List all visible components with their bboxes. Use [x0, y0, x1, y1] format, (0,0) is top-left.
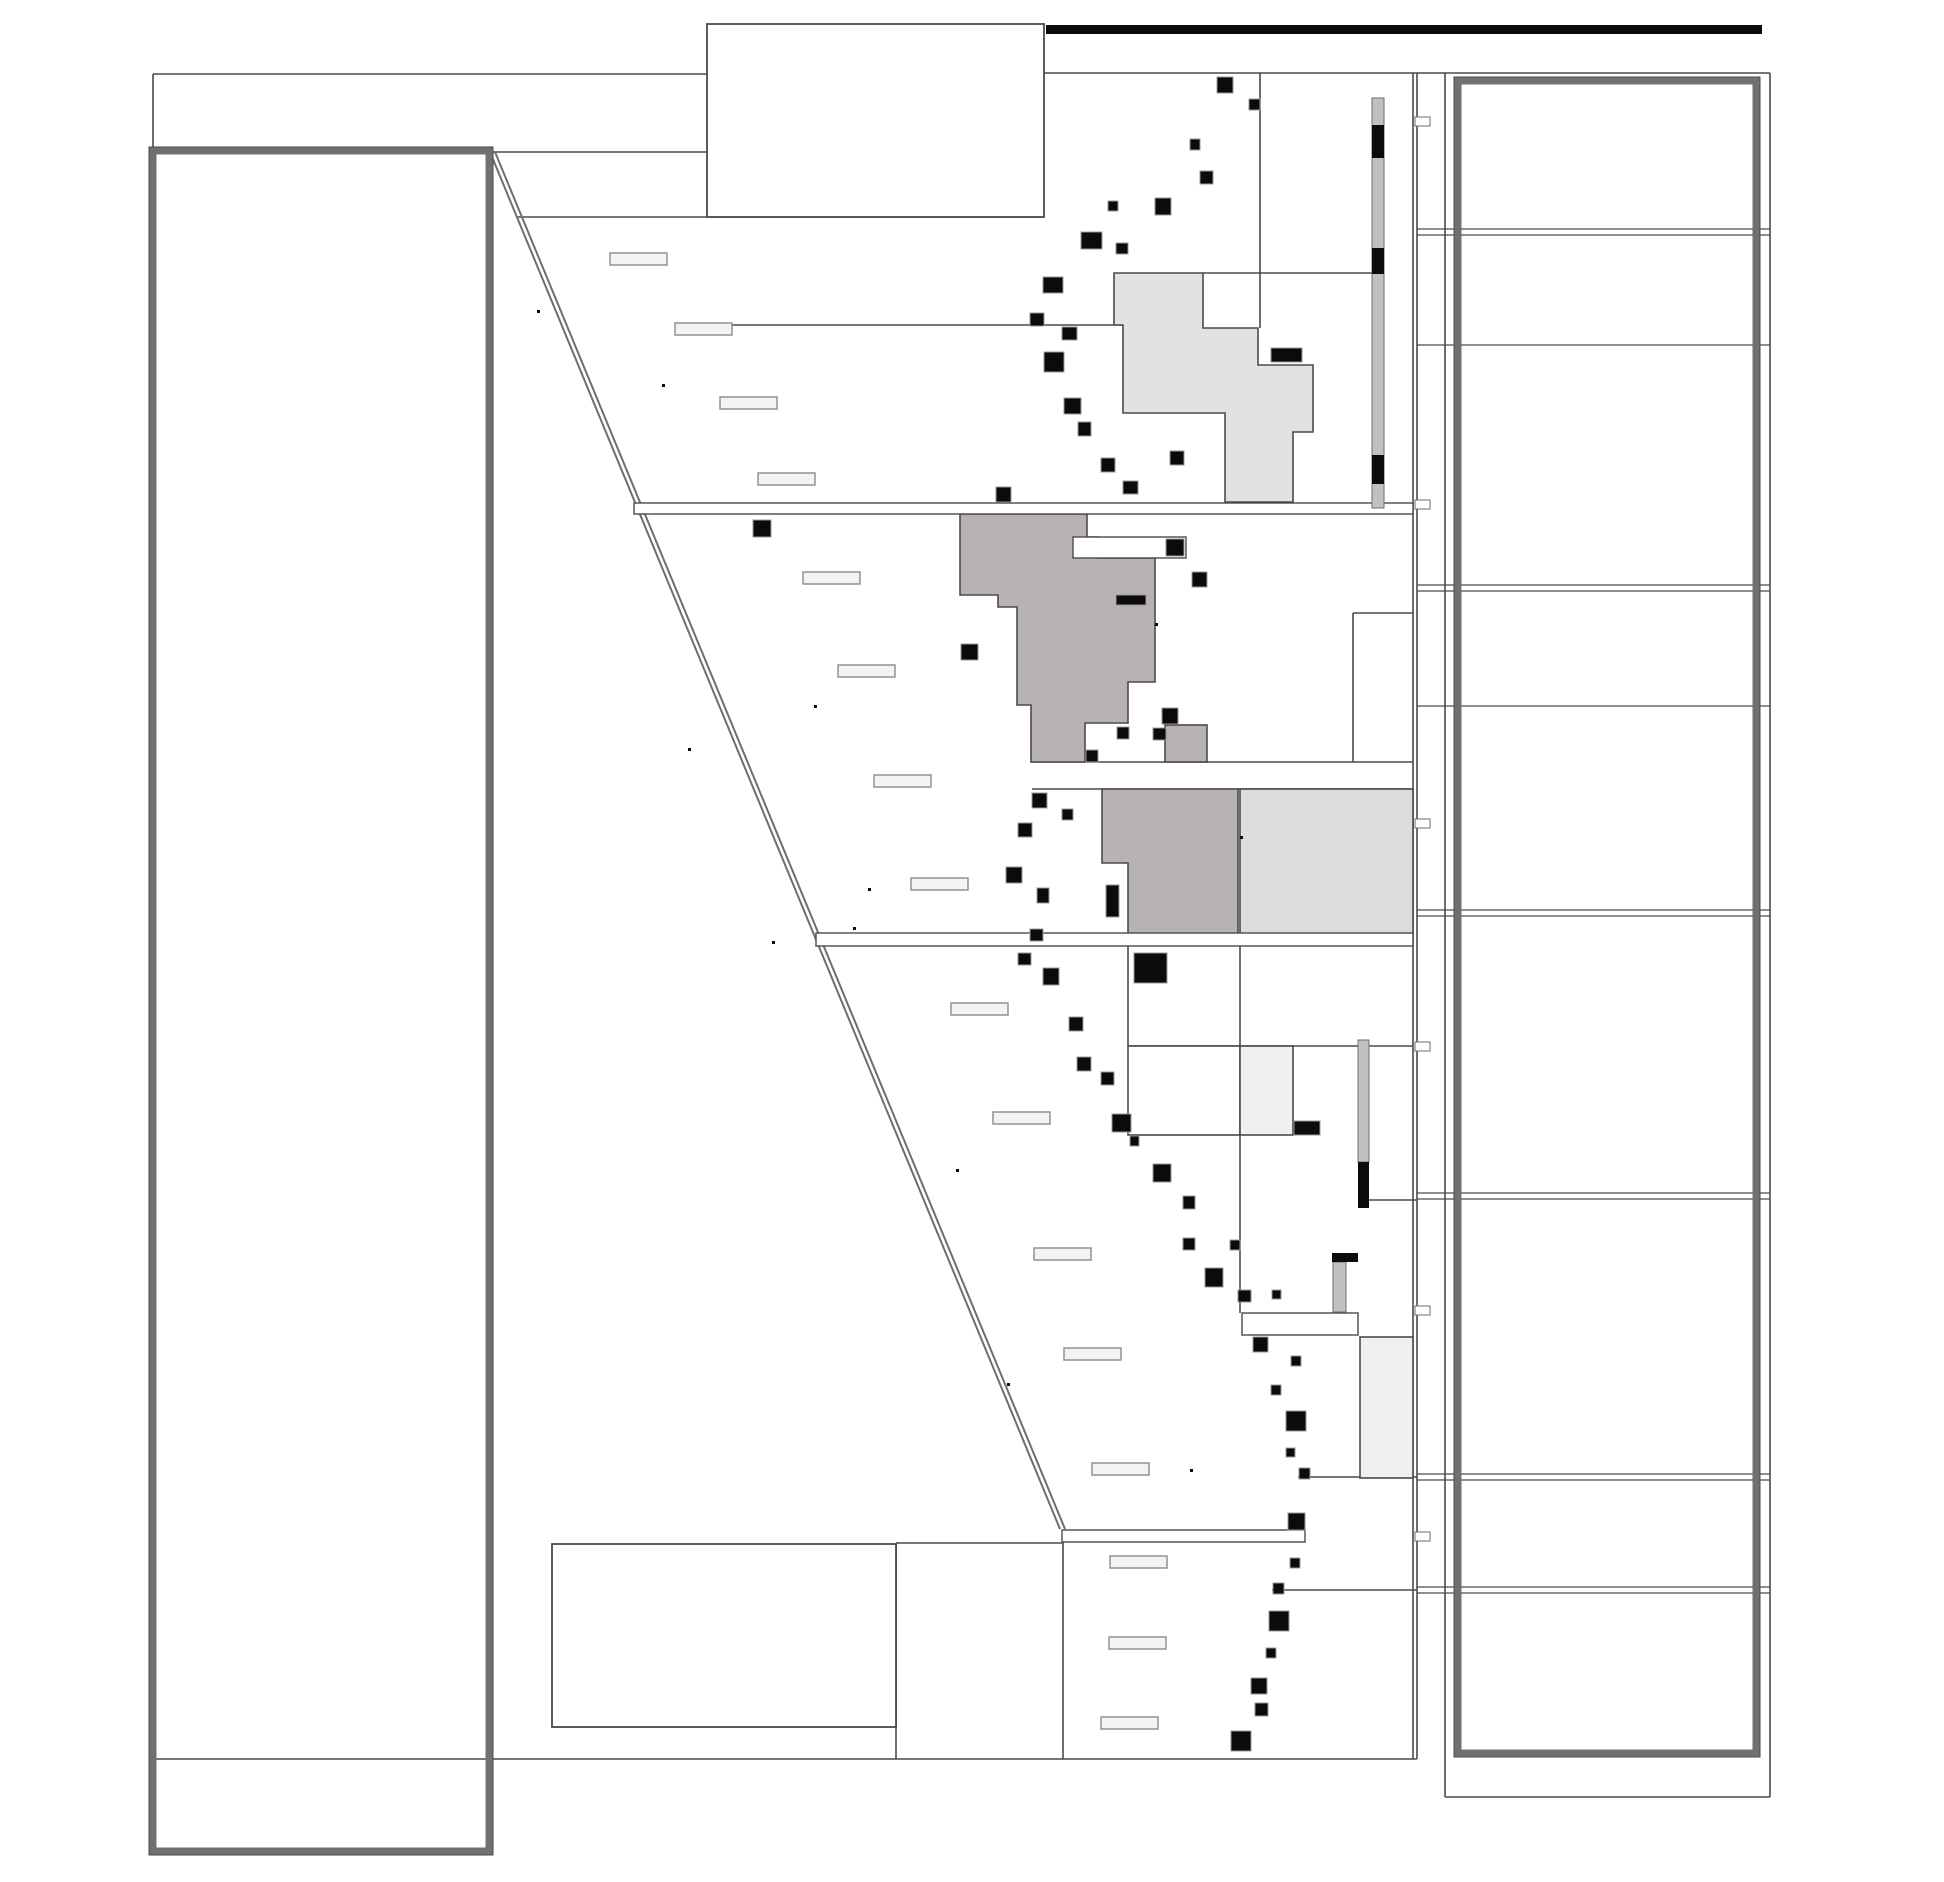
core-trace-square-3 — [1200, 171, 1213, 184]
marker-bar-y933 — [816, 933, 1413, 946]
core-trace-square-50 — [1291, 1356, 1301, 1366]
gray-strip-top-black-1 — [1372, 248, 1384, 274]
cell-box-a — [1128, 1046, 1240, 1135]
core-trace-square-52 — [1286, 1411, 1306, 1431]
core-trace-square-17 — [996, 487, 1011, 502]
core-trace-square-23 — [1117, 727, 1129, 739]
boundary-tick-1 — [1415, 500, 1430, 509]
top-black-bar — [1046, 25, 1762, 34]
depth-label-chip-4 — [803, 572, 860, 584]
core-trace-square-55 — [1288, 1513, 1305, 1530]
depth-label-chip-10 — [1034, 1248, 1091, 1260]
core-trace-square-30 — [1037, 888, 1049, 903]
depth-label-chip-8 — [951, 1003, 1008, 1015]
core-trace-square-42 — [1183, 1196, 1195, 1209]
core-trace-square-28 — [1018, 823, 1032, 837]
core-trace-square-58 — [1269, 1611, 1289, 1631]
core-trace-square-16 — [1123, 481, 1138, 494]
core-trace-square-56 — [1290, 1558, 1300, 1568]
title-block-box — [707, 24, 1044, 217]
depth-label-chip-7 — [911, 878, 968, 890]
core-trace-square-35 — [1043, 968, 1059, 985]
core-trace-square-39 — [1112, 1114, 1131, 1132]
depth-label-chip-3 — [758, 473, 815, 485]
gray-strip-low-black-0 — [1332, 1253, 1358, 1262]
core-trace-square-27 — [1062, 809, 1073, 820]
core-trace-square-53 — [1286, 1448, 1295, 1457]
lith-rect-small — [1165, 725, 1207, 762]
boundary-tick-2 — [1415, 819, 1430, 828]
marker-bar-y1530 — [1062, 1530, 1305, 1542]
core-trace-square-29 — [1006, 867, 1022, 883]
lith-rect-r3 — [1240, 789, 1413, 940]
core-trace-square-24 — [1153, 728, 1166, 740]
depth-label-chip-9 — [993, 1112, 1050, 1124]
boundary-tick-4 — [1415, 1306, 1430, 1315]
core-trace-square-26 — [1032, 793, 1047, 808]
core-trace-square-7 — [1081, 232, 1102, 249]
core-trace-square-38 — [1101, 1072, 1114, 1085]
core-trace-square-13 — [1078, 422, 1091, 436]
depth-label-chip-14 — [1109, 1637, 1166, 1649]
core-trace-square-48 — [1294, 1121, 1320, 1135]
depth-label-chip-0 — [610, 253, 667, 265]
core-trace-square-5 — [1108, 201, 1118, 211]
core-trace-square-40 — [1130, 1136, 1139, 1146]
trace-dot-5 — [853, 927, 856, 930]
core-trace-square-8 — [1043, 277, 1063, 293]
depth-label-chip-5 — [838, 665, 895, 677]
core-trace-square-14 — [1101, 458, 1115, 472]
gray-strip-top — [1372, 98, 1384, 508]
core-trace-square-57 — [1273, 1583, 1284, 1594]
depth-label-chip-1 — [675, 323, 732, 335]
core-trace-square-63 — [1166, 539, 1184, 556]
gray-strip-top-black-2 — [1372, 455, 1384, 484]
core-trace-square-43 — [1183, 1238, 1195, 1250]
core-trace-square-18 — [753, 520, 771, 537]
core-trace-square-9 — [1030, 313, 1044, 326]
gray-strip-top-black-0 — [1372, 125, 1384, 158]
trace-dot-7 — [956, 1169, 959, 1172]
core-trace-square-61 — [1255, 1703, 1268, 1716]
core-trace-square-64 — [1116, 595, 1146, 605]
core-trace-square-37 — [1077, 1057, 1091, 1071]
legend-block-box — [552, 1544, 896, 1727]
core-trace-square-10 — [1062, 327, 1077, 340]
core-trace-square-33 — [1134, 953, 1167, 983]
boundary-tick-0 — [1415, 117, 1430, 126]
trace-dot-6 — [772, 941, 775, 944]
gray-strip-low — [1333, 1262, 1346, 1312]
core-trace-square-51 — [1271, 1385, 1281, 1395]
trace-dot-9 — [1007, 1383, 1010, 1386]
trace-dot-4 — [868, 888, 871, 891]
core-trace-square-2 — [1190, 139, 1200, 150]
trace-dot-11 — [1155, 623, 1158, 626]
gray-strip-mid — [1358, 1040, 1369, 1162]
core-trace-square-62 — [1231, 1731, 1251, 1751]
core-trace-square-60 — [1251, 1678, 1267, 1694]
core-trace-square-47 — [1272, 1290, 1281, 1299]
core-trace-square-34 — [1106, 885, 1119, 917]
core-trace-square-19 — [1192, 572, 1207, 587]
depth-label-chip-15 — [1101, 1717, 1158, 1729]
cell-box-g1 — [1360, 1337, 1413, 1478]
depth-label-chip-6 — [874, 775, 931, 787]
boundary-tick-5 — [1415, 1532, 1430, 1541]
depth-label-chip-13 — [1110, 1556, 1167, 1568]
marker-bar-y503 — [634, 503, 1413, 514]
trace-dot-0 — [537, 310, 540, 313]
boundary-tick-3 — [1415, 1042, 1430, 1051]
trace-dot-1 — [662, 384, 665, 387]
core-trace-square-49 — [1253, 1337, 1268, 1352]
core-trace-square-36 — [1069, 1017, 1083, 1031]
depth-label-chip-2 — [720, 397, 777, 409]
core-trace-square-15 — [1170, 451, 1184, 465]
core-trace-square-4 — [1155, 198, 1171, 215]
core-trace-square-0 — [1217, 77, 1233, 93]
gray-strip-mid-black-0 — [1358, 1162, 1369, 1208]
core-trace-square-12 — [1064, 398, 1081, 414]
core-trace-square-1 — [1249, 99, 1260, 110]
technical-drawing-canvas — [0, 0, 1944, 1882]
core-trace-square-6 — [1116, 243, 1128, 254]
cell-box-b — [1240, 1046, 1293, 1135]
trace-dot-2 — [814, 705, 817, 708]
trace-dot-8 — [1240, 836, 1243, 839]
core-trace-square-46 — [1238, 1290, 1251, 1302]
core-trace-square-41 — [1153, 1164, 1171, 1182]
drawing-sheet — [0, 0, 1944, 1882]
core-trace-square-32 — [1018, 953, 1031, 965]
core-trace-square-59 — [1266, 1648, 1276, 1658]
core-trace-square-20 — [961, 644, 978, 660]
inset-bar-w1 — [1242, 1313, 1358, 1335]
core-trace-square-45 — [1205, 1268, 1223, 1287]
depth-label-chip-11 — [1064, 1348, 1121, 1360]
core-trace-square-21 — [1271, 348, 1302, 362]
core-trace-square-44 — [1230, 1240, 1240, 1250]
core-trace-square-31 — [1030, 929, 1043, 941]
core-trace-square-22 — [1162, 708, 1178, 724]
core-trace-square-11 — [1044, 352, 1064, 372]
core-trace-square-54 — [1299, 1468, 1310, 1479]
depth-label-chip-12 — [1092, 1463, 1149, 1475]
trace-dot-3 — [688, 748, 691, 751]
trace-dot-10 — [1190, 1469, 1193, 1472]
core-trace-square-25 — [1086, 750, 1098, 762]
